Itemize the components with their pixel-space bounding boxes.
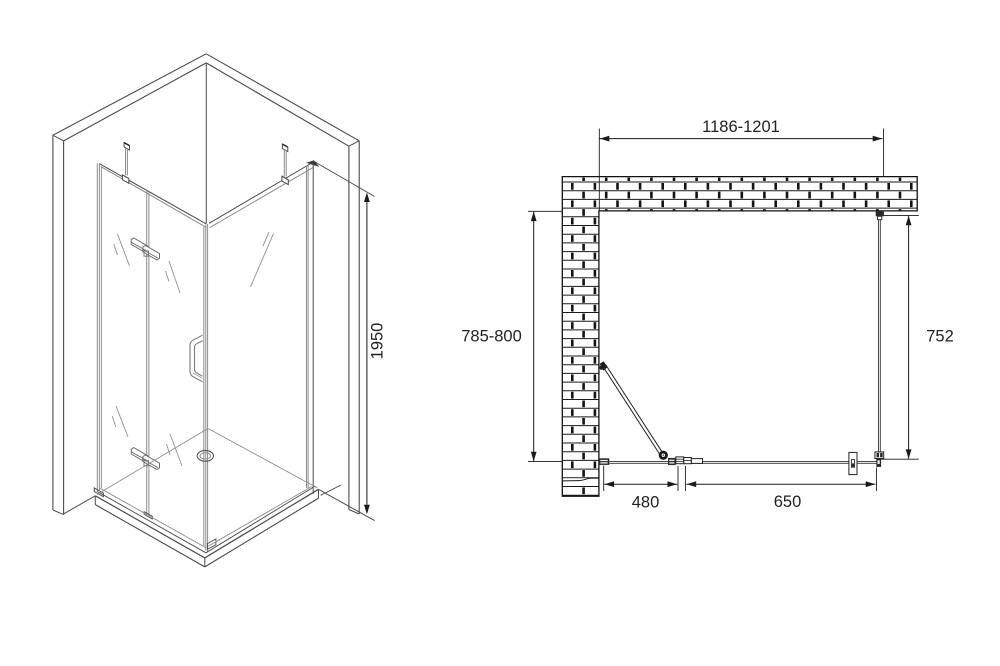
svg-text:785-800: 785-800	[461, 328, 522, 346]
svg-text:1950: 1950	[368, 323, 386, 360]
svg-text:1186-1201: 1186-1201	[702, 118, 780, 136]
svg-text:480: 480	[632, 494, 660, 512]
svg-text:650: 650	[774, 493, 802, 511]
svg-text:752: 752	[926, 328, 954, 346]
